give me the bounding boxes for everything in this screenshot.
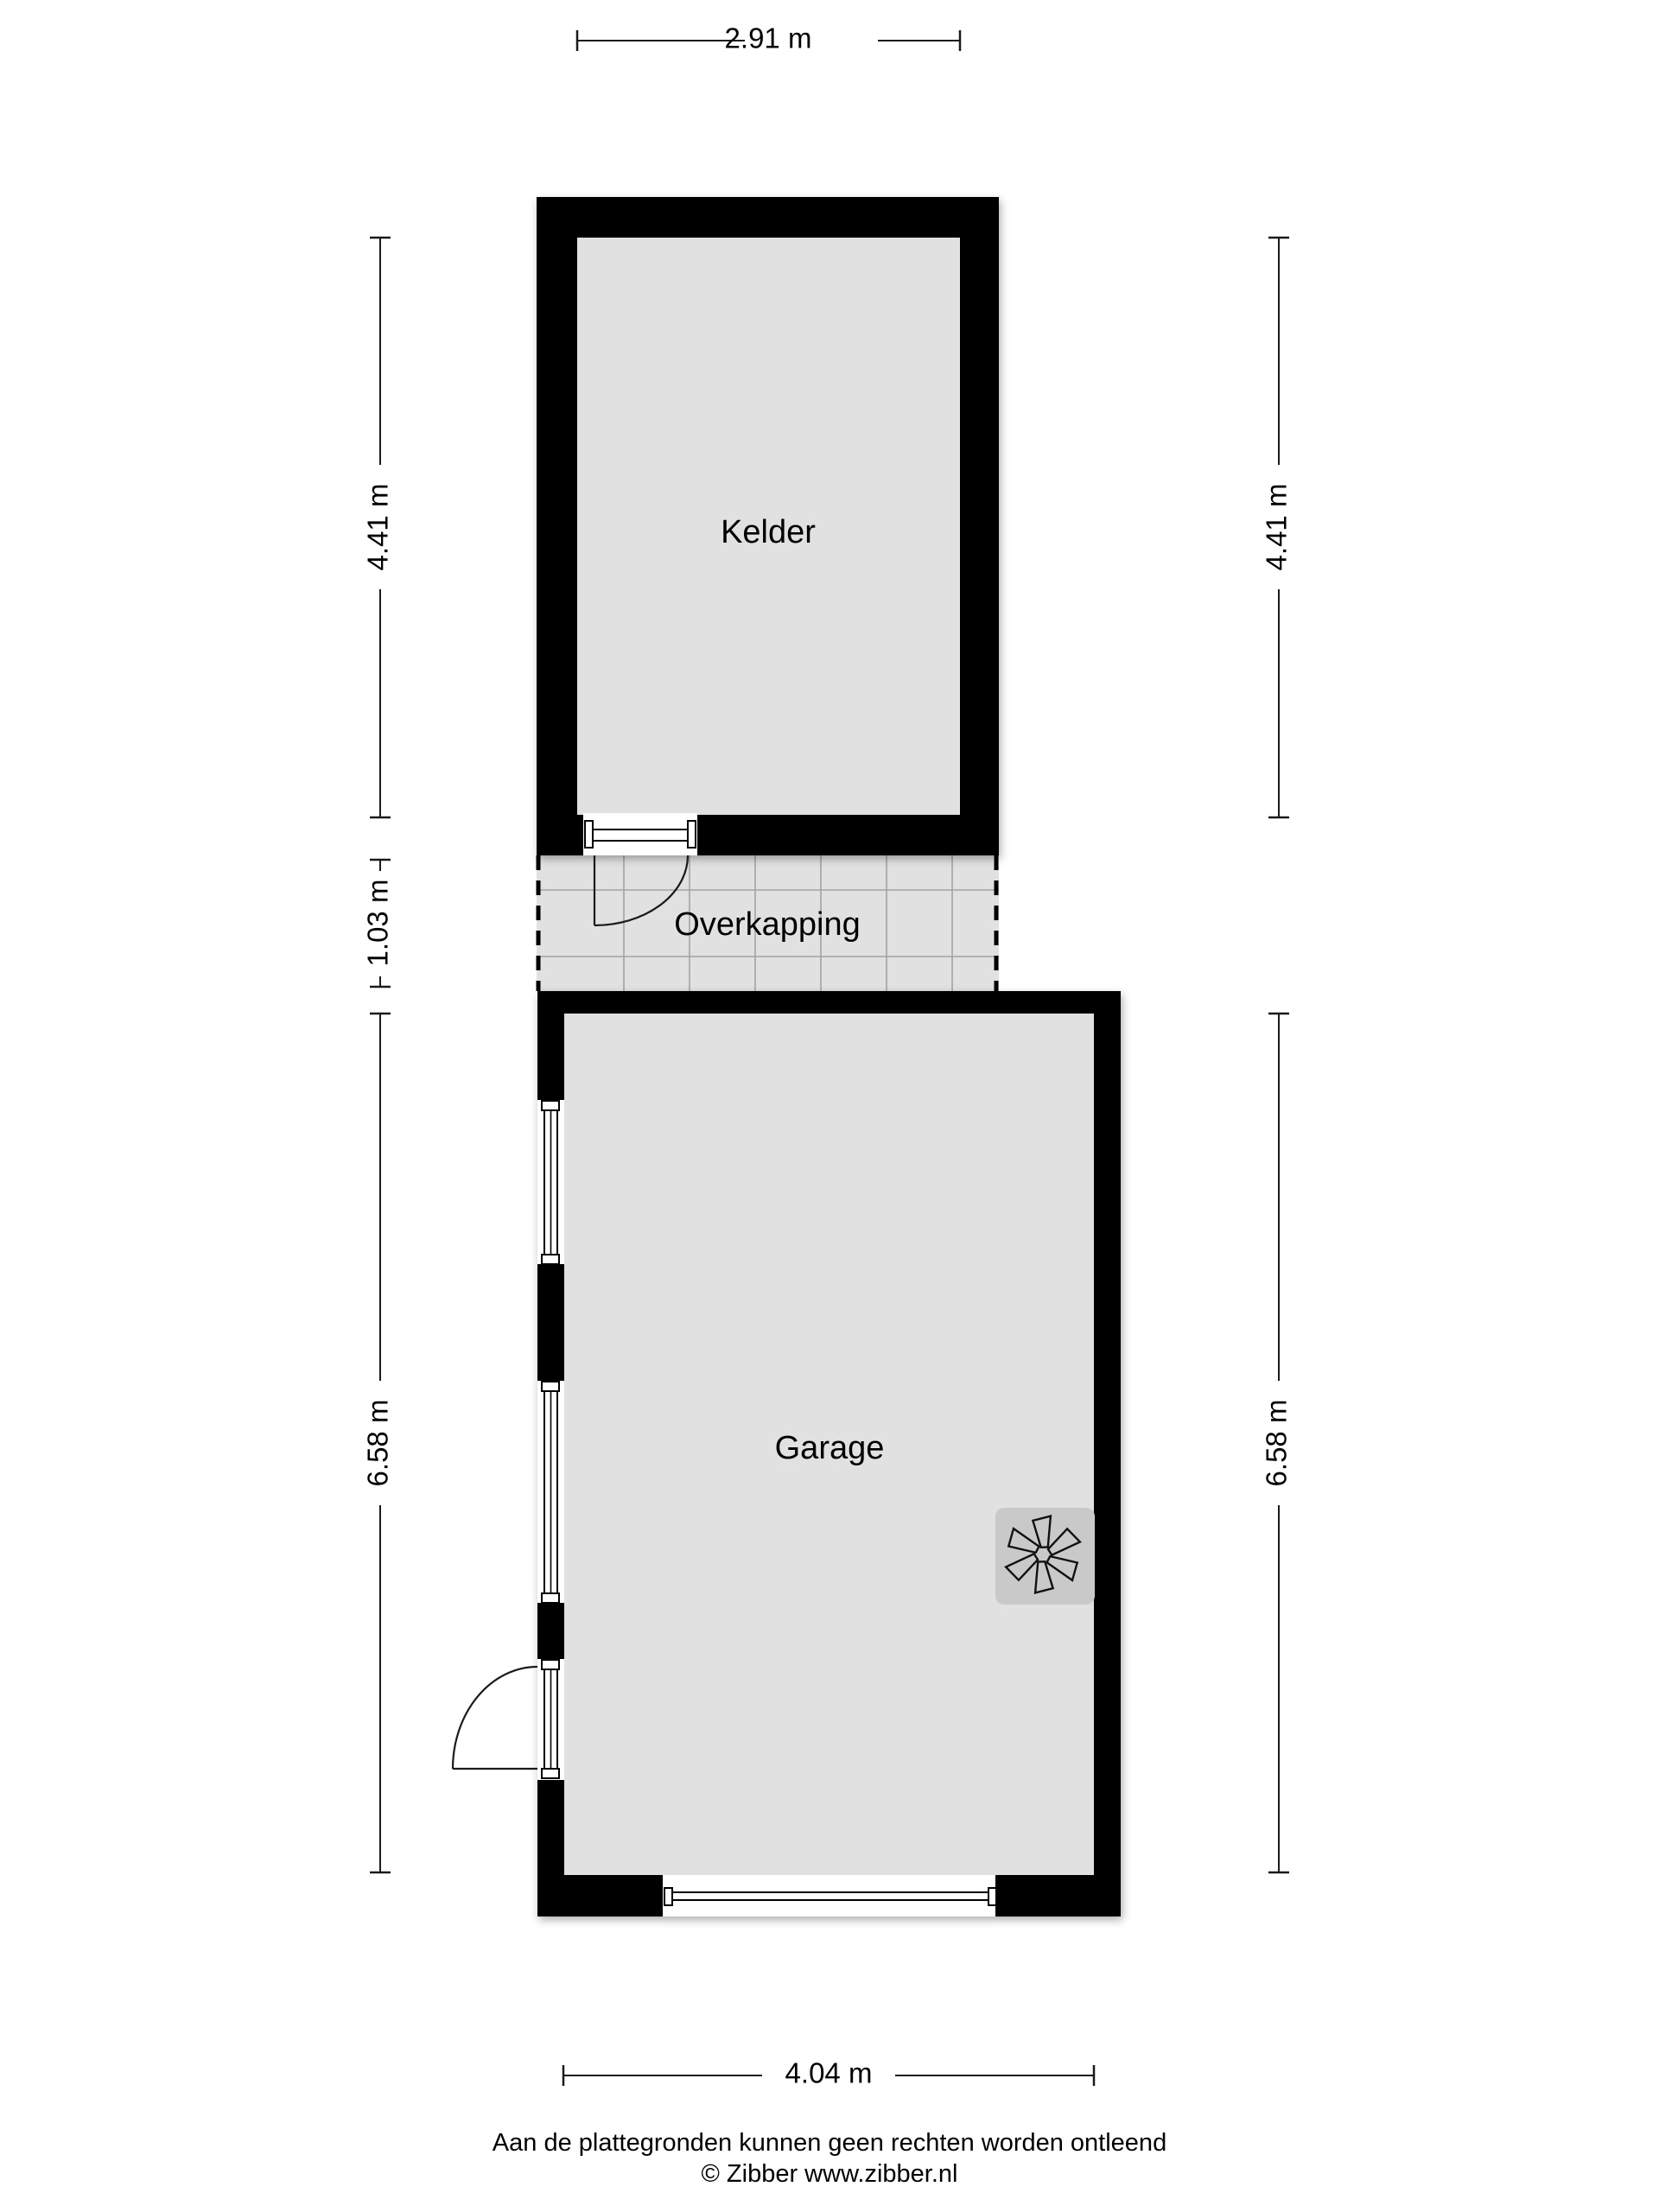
kelder-door-jamb-right [688,821,696,848]
dimension-top: 2.91 m [577,22,960,54]
garage-door-cap-right [988,1888,996,1905]
dimension-left-middle: 1.03 m [362,860,394,987]
dimension-label-right-lower: 6.58 m [1261,1400,1293,1487]
kelder-door-panel [593,829,688,841]
side-door-cap-bottom [542,1769,559,1778]
footer-disclaimer: Aan de plattegronden kunnen geen rechten… [493,2129,1166,2157]
dimension-label-left-middle: 1.03 m [362,880,394,967]
ventilation-unit [995,1508,1095,1605]
footer-credit: © Zibber www.zibber.nl [702,2160,958,2188]
dimension-label-top: 2.91 m [725,22,812,54]
dimension-right-lower: 6.58 m [1261,1014,1293,1872]
floor-plan-svg: Kelder Overkapping Garage 2.91 m 4.41 m … [0,0,1659,2212]
window-2 [537,1381,564,1603]
garage-door-panel [672,1892,988,1900]
dimension-left-upper: 4.41 m [362,238,394,817]
overkapping-label: Overkapping [674,906,860,943]
window-1 [537,1100,564,1264]
window-cap-top [542,1382,559,1391]
window-cap-top [542,1101,559,1110]
dimension-label-bottom: 4.04 m [785,2057,873,2089]
dimension-label-left-lower: 6.58 m [362,1400,394,1487]
garage-door-cap-left [664,1888,672,1905]
kelder-room [537,197,999,925]
window-cap-bottom [542,1255,559,1264]
dimension-bottom: 4.04 m [563,2057,1094,2089]
garage-door [663,1875,996,1916]
kelder-label: Kelder [721,514,816,550]
garage-side-door [453,1659,564,1780]
garage-label: Garage [775,1430,885,1466]
dimension-right-upper: 4.41 m [1261,238,1293,817]
kelder-door-jamb-left [585,821,593,848]
dimension-label-right-upper: 4.41 m [1261,484,1293,571]
side-door-swing-arc [453,1667,537,1769]
floor-plan-page: Kelder Overkapping Garage 2.91 m 4.41 m … [0,0,1659,2212]
window-cap-bottom [542,1593,559,1603]
dimension-label-left-upper: 4.41 m [362,484,394,571]
side-door-cap-top [542,1660,559,1669]
dimension-left-lower: 6.58 m [362,1014,394,1872]
